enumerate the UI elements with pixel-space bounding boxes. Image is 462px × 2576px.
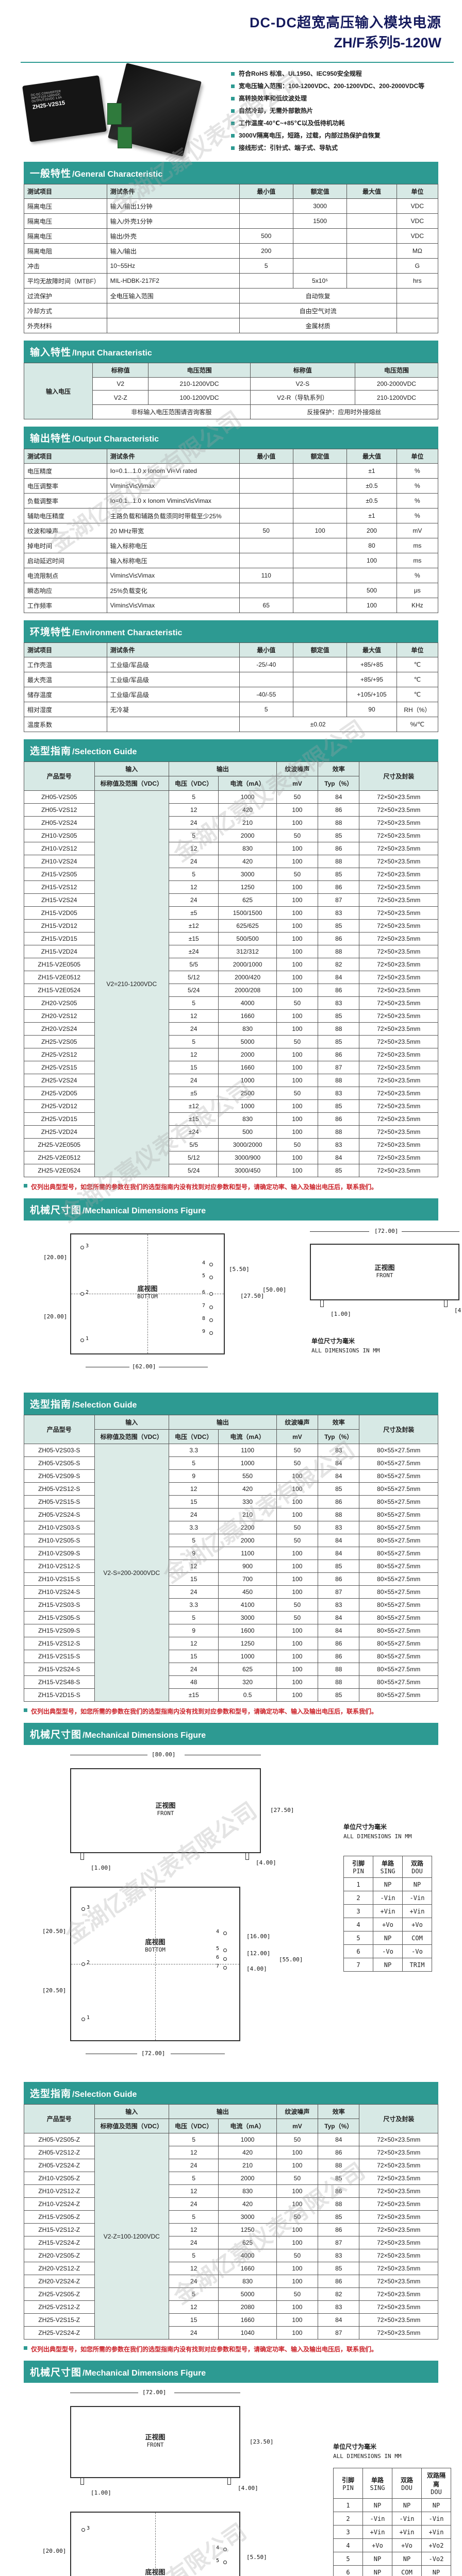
cell (239, 538, 293, 553)
cell (397, 318, 438, 333)
cell: 全电压输入范围 (107, 289, 239, 303)
cell: 相对湿度 (24, 702, 107, 717)
column-header: 产品型号 (24, 1415, 95, 1444)
cell: 电流限制点 (24, 568, 107, 583)
cell: 100 (276, 920, 318, 933)
model-row: ZH10-V2S03-S3.32200508380×55×27.5mm (24, 1521, 438, 1534)
cell: 72×50×23.5mm (359, 1113, 438, 1126)
model-cell: ZH15-V2S12 (24, 881, 95, 894)
cell: 625 (219, 894, 276, 907)
note-bullet-icon (24, 1184, 27, 1188)
section-mech-3: 机械尺寸图 /Mechanical Dimensions Figure (24, 2361, 438, 2383)
cell: 24 (169, 817, 219, 829)
cell: 72×50×23.5mm (359, 907, 438, 920)
cell (293, 538, 346, 553)
cell: 工业级/军品级 (107, 672, 239, 687)
cell: 5 (169, 2133, 219, 2146)
cell: 100 (276, 817, 318, 829)
cell: VDC (397, 199, 438, 214)
cell: Io=0.1...1.0 x Ionom Vimin≤Vi≤Vimax (107, 494, 239, 509)
model-row: ZH15-V2S12-S1212501008680×55×27.5mm (24, 1637, 438, 1650)
dim-label: [1.00] (91, 2489, 111, 2496)
cell (347, 199, 397, 214)
column-header: Typ（%） (318, 776, 359, 791)
column-header: 最小值 (239, 184, 293, 199)
cell: V2 (93, 378, 148, 391)
cell: +85/+85 (347, 657, 397, 672)
pin-row: 7NPTRIM (344, 1958, 432, 1972)
table-row: 负载调整率Io=0.1...1.0 x Ionom Vimin≤Vi≤Vimax… (24, 494, 438, 509)
model-cell: ZH25-V2S05 (24, 1036, 95, 1048)
cell: ±1 (347, 464, 397, 479)
pin-header-row: 引脚PIN单路SING双路DOU (344, 1856, 432, 1878)
cell: % (397, 494, 438, 509)
cell: 72×50×23.5mm (359, 2185, 438, 2198)
cell: 72×50×23.5mm (359, 1061, 438, 1074)
cell: 5000 (219, 2288, 276, 2301)
model-cell: ZH25-V2D05 (24, 1087, 95, 1100)
cell: 100 (293, 523, 346, 538)
column-header: 额定值 (293, 643, 346, 657)
section-output: 输出特性 /Output Characteristic (24, 427, 438, 449)
pin-cell: COM (392, 2566, 422, 2576)
cell: 50 (276, 2288, 318, 2301)
model-row: ZH10-V2S0552000508572×50×23.5mm (24, 829, 438, 842)
cell: 80×55×27.5mm (359, 1560, 438, 1573)
cell: 700 (219, 1573, 276, 1586)
cell: 工业级/军品级 (107, 687, 239, 702)
cell: 100 (276, 855, 318, 868)
cell: 12 (169, 2301, 219, 2314)
unit-note-en: ALL DIMENSIONS IN MM (311, 1347, 379, 1354)
cell: 88 (318, 817, 359, 829)
cell: 84 (318, 791, 359, 804)
cell: 5 (169, 2288, 219, 2301)
cell: +85/+95 (347, 672, 397, 687)
unit-note-cn: 单位尺寸为毫米 (343, 1822, 411, 1831)
pin-row: 4+Vo+Vo (344, 1918, 432, 1931)
pin-header-en: PIN (347, 1868, 370, 1875)
cell: 80×55×27.5mm (359, 1509, 438, 1521)
cell: 100 (276, 2262, 318, 2275)
pin-cell: -Vo2 (422, 2552, 451, 2566)
column-header: 电压（VDC） (169, 2119, 219, 2133)
input-range-cell: V2-Z=100-1200VDC (94, 2133, 169, 2340)
column-header: 最小值 (239, 449, 293, 464)
model-row: ZH15-V2D24±24312/3121008872×50×23.5mm (24, 945, 438, 958)
cell: 80×55×27.5mm (359, 1534, 438, 1547)
input-voltage-label: 输入电压 (24, 363, 93, 419)
cell: 纹波和噪声 (24, 523, 107, 538)
cell: 83 (318, 2301, 359, 2314)
column-header: 纹波噪声 (276, 2105, 318, 2119)
cell: 80×55×27.5mm (359, 1676, 438, 1689)
front-view-label-cn: 正视图 (71, 2432, 239, 2442)
column-header: 尺寸及封装 (359, 762, 438, 791)
cell: 100 (276, 958, 318, 971)
cell: 冷却方式 (24, 303, 107, 318)
cell: 100 (276, 1126, 318, 1139)
cell: 87 (318, 2327, 359, 2340)
cell: 50 (276, 2211, 318, 2224)
cell: 72×50×23.5mm (359, 881, 438, 894)
cell: 110 (239, 568, 293, 583)
cell: 5 (169, 868, 219, 881)
cell (239, 479, 293, 494)
section-title-en: /Mechanical Dimensions Figure (82, 1207, 206, 1216)
front-view-label-en: FRONT (71, 1810, 260, 1817)
cell: 330 (219, 1496, 276, 1509)
model-row: ZH05-V2S24-S242101008880×55×27.5mm (24, 1509, 438, 1521)
table-row: 温度系数±0.02%/℃ (24, 717, 438, 732)
cell: 83 (318, 1087, 359, 1100)
col-range: 电压范围 (148, 363, 250, 378)
col-nominal: 标称值 (250, 363, 355, 378)
table-row: 隔离电阻输入/输出200MΩ (24, 244, 438, 259)
cell: 88 (318, 855, 359, 868)
cell: 80×55×27.5mm (359, 1444, 438, 1457)
cell: 辅助电压精度 (24, 509, 107, 523)
table-row: 相对湿度无冷凝590RH（%） (24, 702, 438, 717)
cell: 2080 (219, 2301, 276, 2314)
section-title-en: /Selection Guide (72, 748, 137, 757)
cell: 100 (276, 1164, 318, 1177)
note-bullet-icon (24, 1708, 27, 1712)
model-row: ZH15-V2D12±12625/6251008572×50×23.5mm (24, 920, 438, 933)
dim-label: [80.00] (152, 1751, 175, 1758)
model-row: ZH05-V2S24-Z242101008872×50×23.5mm (24, 2159, 438, 2172)
model-cell: ZH25-V2D15 (24, 1113, 95, 1126)
cell: 80×55×27.5mm (359, 1599, 438, 1612)
table-row: 工作壳温工业级/军品级-25/-40+85/+85℃ (24, 657, 438, 672)
pin-header-en: DOU (425, 2488, 448, 2496)
cell: 830 (219, 2185, 276, 2198)
model-row: ZH25-V2S121220001008672×50×23.5mm (24, 1048, 438, 1061)
dim-label: [1.00] (91, 1865, 111, 1871)
cell: hrs (397, 274, 438, 289)
cell: 72×50×23.5mm (359, 2314, 438, 2327)
cell: 83 (318, 1599, 359, 1612)
pin-cell: TRIM (403, 1958, 432, 1972)
cell: 隔离电阻 (24, 244, 107, 259)
pin-header-en: DOU (395, 2484, 418, 2492)
cell: 12 (169, 842, 219, 855)
cell: 72×50×23.5mm (359, 2301, 438, 2314)
input-range-cell: V2=210-1200VDC (94, 791, 169, 1177)
cell: 瞬态响应 (24, 583, 107, 598)
table-row: 隔离电压输出/外壳500VDC (24, 229, 438, 244)
cell (293, 229, 346, 244)
cell: 80 (347, 538, 397, 553)
input-note: 反接保护：应用时外接熔丝 (250, 405, 438, 419)
bullet-icon (231, 109, 235, 113)
model-cell: ZH15-V2D15-S (24, 1689, 95, 1702)
model-cell: ZH05-V2S24 (24, 817, 95, 829)
cell: 5/5 (169, 1139, 219, 1151)
cell: 86 (318, 1573, 359, 1586)
cell: 830 (219, 1023, 276, 1036)
model-row: ZH15-V2S03-S3.34100508380×55×27.5mm (24, 1599, 438, 1612)
feature-item: 接线形式：引针式、端子式、导轨式 (231, 144, 453, 152)
model-row: ZH15-V2E05245/242000/2081008672×50×23.5m… (24, 984, 438, 997)
section-title-cn: 选型指南 (30, 743, 71, 757)
cell: 100 (276, 933, 318, 945)
column-header: 最大值 (347, 449, 397, 464)
cell: ±1 (347, 509, 397, 523)
cell: 72×50×23.5mm (359, 894, 438, 907)
cell: 72×50×23.5mm (359, 1126, 438, 1139)
pin-row: 1NPNPNP (334, 2499, 451, 2512)
model-row: ZH20-V2S12-Z1216601008572×50×23.5mm (24, 2262, 438, 2275)
input-note: 非标输入电压范围请咨询客服 (93, 405, 251, 419)
cell: 5/5 (169, 958, 219, 971)
cell: 72×50×23.5mm (359, 1100, 438, 1113)
model-row: ZH25-V2E05055/53000/2000508372×50×23.5mm (24, 1139, 438, 1151)
cell (347, 568, 397, 583)
table-row: 电压调整率Vimin≤Vi≤Vimax±0.5% (24, 479, 438, 494)
column-header: 产品型号 (24, 762, 95, 791)
cell: 72×50×23.5mm (359, 1151, 438, 1164)
feature-text: 宽电压输入范围：100-1200VDC、200-1200VDC、200-2000… (239, 82, 424, 90)
cell: 100 (276, 1113, 318, 1126)
cell: 50 (239, 523, 293, 538)
model-row: ZH15-V2S05-S53000508480×55×27.5mm (24, 1612, 438, 1624)
model-row: ZH25-V2D15±158301008672×50×23.5mm (24, 1113, 438, 1126)
cell: 1660 (219, 1061, 276, 1074)
pin-cell: 7 (344, 1958, 373, 1972)
cell: 87 (318, 2236, 359, 2249)
cell: 外壳材料 (24, 318, 107, 333)
pin-header-cn: 单路 (366, 2476, 389, 2484)
bullet-icon (231, 84, 235, 88)
cell: VDC (397, 229, 438, 244)
cell: 84 (318, 1457, 359, 1470)
cell: 3000/2000 (219, 1139, 276, 1151)
model-row: ZH05-V2S09-S95501008480×55×27.5mm (24, 1470, 438, 1483)
dim-label: [55.00] (279, 1956, 303, 1963)
cell: % (397, 464, 438, 479)
cell: 86 (318, 1048, 359, 1061)
pin-row: 5NPNP-Vo2 (334, 2552, 451, 2566)
group-header-row: 产品型号输入输出纹波噪声效率尺寸及封装 (24, 2105, 438, 2119)
cell: 830 (219, 2275, 276, 2288)
section-selection-3: 选型指南 /Selection Guide (24, 2082, 438, 2104)
unit-note-en: ALL DIMENSIONS IN MM (343, 1833, 411, 1840)
cell: ±24 (169, 945, 219, 958)
cell (397, 303, 438, 318)
cell (293, 244, 346, 259)
column-header: 输出 (169, 2105, 277, 2119)
model-row: ZH05-V2S05-S51000508480×55×27.5mm (24, 1457, 438, 1470)
cell: 50 (276, 1087, 318, 1100)
model-cell: ZH25-V2S24 (24, 1074, 95, 1087)
cell: 5 (169, 2172, 219, 2185)
cell: 72×50×23.5mm (359, 997, 438, 1010)
cell: 84 (318, 1470, 359, 1483)
pin-cell: -Vin (373, 1891, 403, 1905)
table-row: 冲击10~55Hz5G (24, 259, 438, 274)
pin-header-cn: 双路 (395, 2476, 418, 2484)
cell: 1000 (219, 1650, 276, 1663)
cell: 12 (169, 1483, 219, 1496)
section-title-cn: 输入特性 (30, 345, 71, 359)
cell: 5/24 (169, 1164, 219, 1177)
section-title-en: /Mechanical Dimensions Figure (82, 1731, 206, 1740)
cell: 72×50×23.5mm (359, 2224, 438, 2236)
cell: 5 (169, 791, 219, 804)
pin-cell: 3 (344, 1905, 373, 1918)
model-cell: ZH10-V2S03-S (24, 1521, 95, 1534)
model-row: ZH15-V2S24246251008772×50×23.5mm (24, 894, 438, 907)
title-divider (21, 62, 454, 63)
cell: 工作壳温 (24, 657, 107, 672)
cell: 830 (219, 1113, 276, 1126)
cell: 4100 (219, 1599, 276, 1612)
pin-cell: +Vin (363, 2526, 392, 2539)
cell: 12 (169, 2224, 219, 2236)
pin-row: 2-Vin-Vin-Vin (334, 2512, 451, 2526)
cell: 86 (318, 2224, 359, 2236)
cell: 100 (276, 1470, 318, 1483)
cell: Vimin≤Vi≤Vimax (107, 568, 239, 583)
terminal-connector (118, 127, 132, 148)
model-cell: ZH05-V2S12 (24, 804, 95, 817)
pin-cell: 5 (334, 2552, 363, 2566)
cell: 100 (276, 2275, 318, 2288)
cell: 12 (169, 1560, 219, 1573)
cell: 100 (276, 881, 318, 894)
cell: 83 (318, 1521, 359, 1534)
cell: 电压精度 (24, 464, 107, 479)
cell: % (397, 568, 438, 583)
model-cell: ZH25-V2S24-Z (24, 2327, 95, 2340)
cell: 72×50×23.5mm (359, 933, 438, 945)
model-cell: ZH10-V2S05-Z (24, 2172, 95, 2185)
model-cell: ZH10-V2S24-S (24, 1586, 95, 1599)
header-row: 测试项目测试条件最小值额定值最大值单位 (24, 643, 438, 657)
cell: 900 (219, 1560, 276, 1573)
pin-header-en: PIN (337, 2484, 359, 2492)
cell: 80×55×27.5mm (359, 1496, 438, 1509)
cell: 85 (318, 1036, 359, 1048)
model-row: ZH20-V2S0554000508372×50×23.5mm (24, 997, 438, 1010)
feature-text: 工作温度-40℃~+85℃以及低待机功耗 (239, 120, 345, 127)
column-header: 尺寸及封装 (359, 2105, 438, 2133)
mech-figure-3: 正视图 FRONT [72.00] [23.50] [1.00] [4.00] … (24, 2383, 438, 2576)
cell: 24 (169, 2275, 219, 2288)
model-cell: ZH05-V2S05-Z (24, 2133, 95, 2146)
cell: 储存温度 (24, 687, 107, 702)
group-header-row: 产品型号输入输出纹波噪声效率尺寸及封装 (24, 1415, 438, 1430)
cell: 500 (239, 229, 293, 244)
table-row: 纹波和噪声20 MHz带宽50100200mV (24, 523, 438, 538)
model-cell: ZH20-V2S05 (24, 997, 95, 1010)
dim-label: [12.00] (246, 1950, 270, 1957)
cell: 2000 (219, 1048, 276, 1061)
cell: 50 (276, 829, 318, 842)
cell: 输入/输出1分钟 (107, 199, 239, 214)
cell: 100 (276, 1650, 318, 1663)
model-row: ZH10-V2S24-Z244201008872×50×23.5mm (24, 2198, 438, 2211)
section-mech-2: 机械尺寸图 /Mechanical Dimensions Figure (24, 1723, 438, 1745)
dim-label: [5.50] (246, 2554, 267, 2561)
model-row: ZH15-V2S24-S246251008880×55×27.5mm (24, 1663, 438, 1676)
column-header: 输入 (94, 2105, 169, 2119)
typical-models-note: 仅列出典型型号，如您所需的参数在我们的选型指南内没有找到对应参数和型号，请确定功… (24, 2345, 438, 2353)
cell: 100 (276, 945, 318, 958)
column-header: 测试条件 (107, 184, 239, 199)
dim-label: [20.50] (42, 1928, 66, 1935)
cell: 1000 (219, 2133, 276, 2146)
cell (293, 509, 346, 523)
cell: +105/+105 (347, 687, 397, 702)
cell: ms (397, 538, 438, 553)
cell: 72×50×23.5mm (359, 2211, 438, 2224)
cell: 5x10⁵ (293, 274, 346, 289)
model-cell: ZH15-V2S12-Z (24, 2224, 95, 2236)
model-cell: ZH15-V2S05-Z (24, 2211, 95, 2224)
model-cell: ZH20-V2S12 (24, 1010, 95, 1023)
pin-cell: +Vo2 (422, 2539, 451, 2552)
cell (293, 702, 346, 717)
bottom-view-drawing: 底视图 BOTTOM 3 2 1 4 5 6 7 8 9 (70, 2512, 240, 2576)
cell: 86 (318, 2185, 359, 2198)
cell: 80×55×27.5mm (359, 1521, 438, 1534)
cell: 自由空气对流 (239, 303, 397, 318)
section-selection-1: 选型指南 /Selection Guide (24, 739, 438, 761)
cell: 72×50×23.5mm (359, 2275, 438, 2288)
cell: 83 (318, 907, 359, 920)
pin-cell: 4 (334, 2539, 363, 2552)
pin-cell: COM (403, 1931, 432, 1945)
model-cell: ZH15-V2D15 (24, 933, 95, 945)
cell: -40/-55 (239, 687, 293, 702)
cell: 100-1200VDC (148, 391, 250, 405)
cell: 50 (276, 1612, 318, 1624)
cell: 420 (219, 1483, 276, 1496)
pin-cell: -Vin (403, 1891, 432, 1905)
mech-figure-2: 正视图 FRONT [80.00] [27.50] [1.00] [4.00] … (24, 1745, 438, 2075)
cell: 15 (169, 1650, 219, 1663)
cell: 72×50×23.5mm (359, 984, 438, 997)
cell: 80×55×27.5mm (359, 1547, 438, 1560)
pin-cell: +Vin (392, 2526, 422, 2539)
cell: 工业级/军品级 (107, 657, 239, 672)
cell: 工作频率 (24, 598, 107, 613)
cell (239, 274, 293, 289)
cell: 100 (347, 598, 397, 613)
column-header: 效率 (318, 2105, 359, 2119)
cell: 3.3 (169, 1444, 219, 1457)
pin-row: 5NPCOM (344, 1931, 432, 1945)
model-cell: ZH25-V2S15 (24, 1061, 95, 1074)
model-row: ZH05-V2S05-ZV2-Z=100-1200VDC51000508472×… (24, 2133, 438, 2146)
model-row: ZH20-V2S24-Z248301008672×50×23.5mm (24, 2275, 438, 2288)
cell (347, 244, 397, 259)
feature-item: 3000V隔离电压，短路，过载，内部过热保护自恢复 (231, 132, 453, 140)
column-header: mV (276, 1430, 318, 1444)
cell: 100 (276, 1023, 318, 1036)
cell: 1000 (219, 791, 276, 804)
cell: 100 (276, 2146, 318, 2159)
cell: % (397, 479, 438, 494)
cell: 5000 (219, 1036, 276, 1048)
pin-cell: 1 (344, 1878, 373, 1891)
dim-label: [4.00] (238, 2485, 258, 2492)
cell (347, 229, 397, 244)
cell: 72×50×23.5mm (359, 1023, 438, 1036)
table-row: 隔离电压输入/输出1分钟3000VDC (24, 199, 438, 214)
